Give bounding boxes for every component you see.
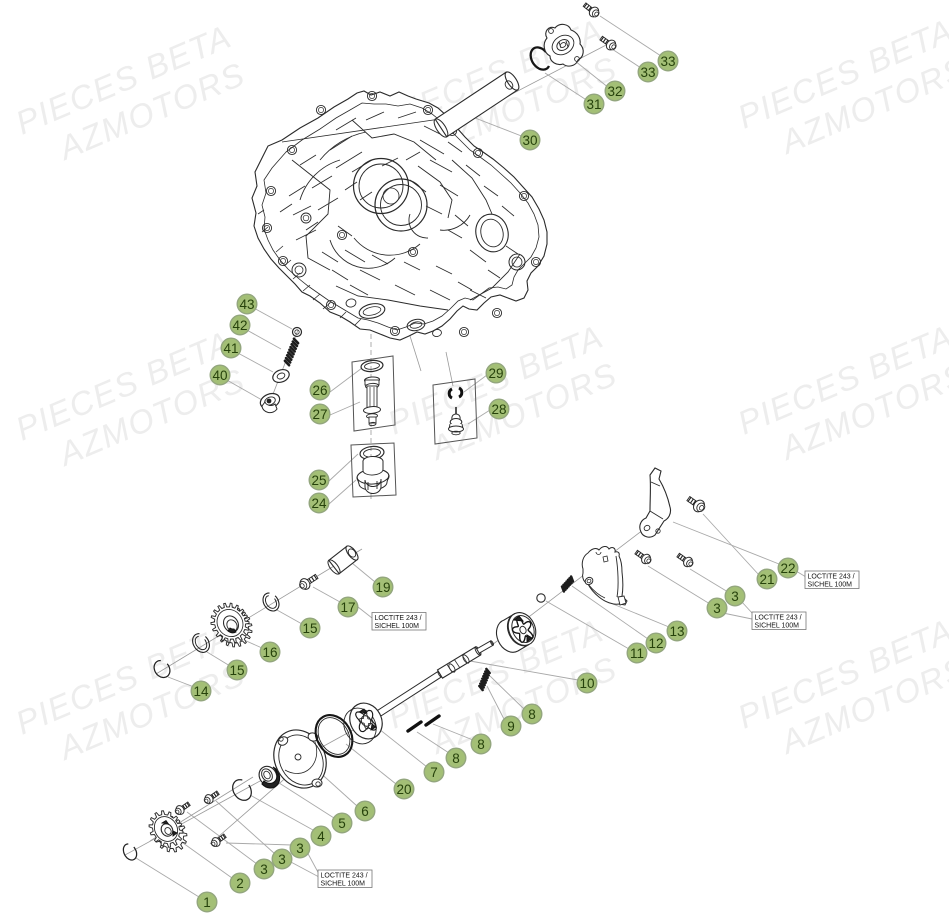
svg-text:43: 43	[239, 297, 254, 312]
svg-text:8: 8	[528, 707, 536, 722]
svg-text:32: 32	[607, 84, 622, 99]
svg-text:8: 8	[477, 737, 485, 752]
svg-text:SICHEL 100M: SICHEL 100M	[321, 881, 366, 888]
svg-text:LOCTITE 243 /: LOCTITE 243 /	[321, 873, 368, 880]
svg-text:2: 2	[236, 876, 244, 891]
svg-text:3: 3	[260, 862, 268, 877]
svg-text:30: 30	[522, 133, 537, 148]
svg-text:42: 42	[232, 318, 247, 333]
svg-text:27: 27	[312, 407, 327, 422]
svg-text:LOCTITE 243 /: LOCTITE 243 /	[808, 574, 855, 581]
svg-text:9: 9	[507, 719, 515, 734]
svg-text:12: 12	[648, 636, 663, 651]
svg-text:20: 20	[396, 782, 411, 797]
svg-text:33: 33	[660, 54, 675, 69]
svg-text:3: 3	[278, 852, 286, 867]
svg-text:29: 29	[488, 366, 503, 381]
svg-text:3: 3	[296, 841, 304, 856]
svg-text:4: 4	[317, 829, 325, 844]
svg-text:10: 10	[579, 676, 594, 691]
svg-text:6: 6	[361, 804, 369, 819]
svg-text:LOCTITE 243 /: LOCTITE 243 /	[755, 615, 802, 622]
svg-text:3: 3	[731, 589, 739, 604]
svg-text:26: 26	[312, 383, 327, 398]
svg-text:7: 7	[430, 765, 438, 780]
svg-text:15: 15	[302, 621, 317, 636]
svg-text:19: 19	[375, 580, 390, 595]
svg-text:22: 22	[780, 561, 795, 576]
svg-text:41: 41	[223, 341, 238, 356]
svg-text:14: 14	[193, 684, 209, 699]
svg-text:15: 15	[229, 663, 244, 678]
svg-text:11: 11	[630, 646, 644, 661]
svg-text:25: 25	[311, 473, 326, 488]
svg-text:33: 33	[640, 65, 655, 80]
svg-text:3: 3	[713, 601, 721, 616]
svg-text:SICHEL 100M: SICHEL 100M	[808, 582, 853, 589]
svg-text:17: 17	[340, 600, 355, 615]
svg-text:LOCTITE 243 /: LOCTITE 243 /	[375, 615, 422, 622]
svg-text:1: 1	[203, 895, 211, 910]
svg-text:40: 40	[212, 368, 227, 383]
svg-text:13: 13	[669, 624, 684, 639]
svg-text:SICHEL 100M: SICHEL 100M	[755, 623, 800, 630]
svg-text:31: 31	[586, 97, 601, 112]
svg-text:24: 24	[311, 496, 327, 511]
svg-text:28: 28	[491, 402, 506, 417]
svg-text:16: 16	[262, 645, 277, 660]
svg-text:8: 8	[452, 751, 460, 766]
svg-text:21: 21	[759, 572, 774, 587]
svg-text:5: 5	[338, 816, 346, 831]
svg-text:SICHEL 100M: SICHEL 100M	[375, 623, 420, 630]
